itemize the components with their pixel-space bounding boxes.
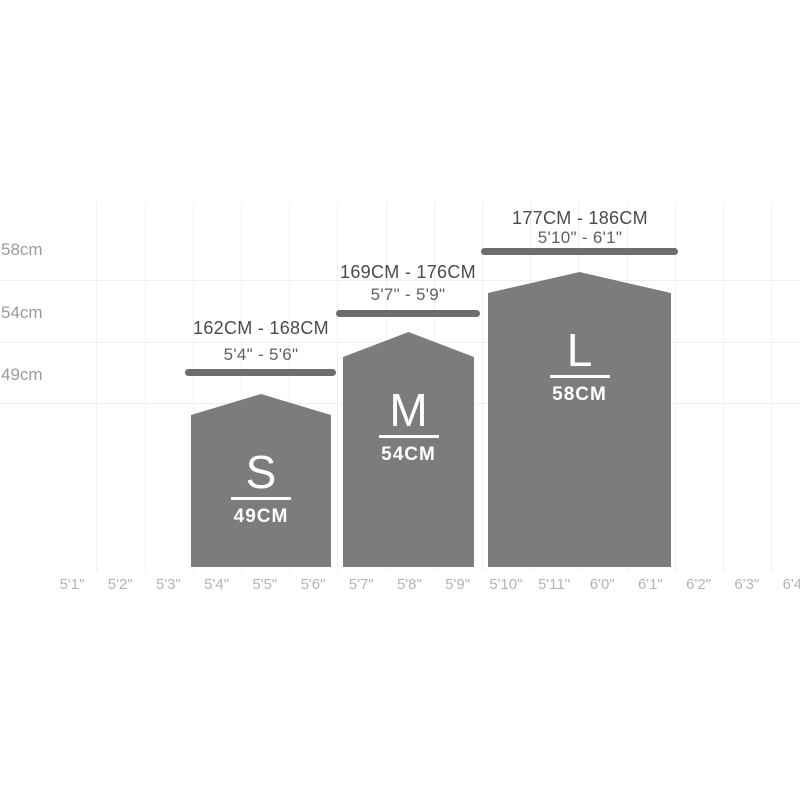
y-axis-label: 54cm: [1, 303, 61, 323]
size-s-letter: S: [191, 449, 331, 495]
vertical-gridline: [337, 202, 338, 572]
size-m-range-bar: [336, 310, 480, 317]
size-s-divider: [231, 497, 291, 500]
size-l-divider: [550, 375, 610, 378]
vertical-gridline: [723, 202, 724, 572]
size-l-bar: L 58CM: [488, 272, 671, 567]
vertical-gridline: [482, 202, 483, 572]
y-axis-label: 58cm: [1, 240, 61, 260]
size-m-height-range-metric: 169CM - 176CM: [258, 261, 558, 283]
size-s-range-bar: [185, 369, 336, 376]
x-axis-label: 6'4": [765, 577, 800, 593]
bike-size-chart: 58cm 54cm 49cm 5'1"5'2"5'3"5'4"5'5"5'6"5…: [0, 0, 800, 800]
size-m-divider: [379, 435, 439, 438]
size-m-letter: M: [343, 387, 474, 433]
size-s-frame-size: 49CM: [191, 506, 331, 528]
vertical-gridline: [675, 202, 676, 572]
size-m-bar: M 54CM: [343, 332, 474, 567]
size-s-bar: S 49CM: [191, 394, 331, 567]
size-s-height-range-metric: 162CM - 168CM: [111, 317, 411, 339]
size-l-height-range-metric: 177CM - 186CM: [430, 207, 730, 229]
size-m-frame-size: 54CM: [343, 444, 474, 466]
vertical-gridline: [96, 202, 97, 572]
y-axis-label: 49cm: [1, 365, 61, 385]
size-l-height-range-imperial: 5'10" - 6'1": [430, 228, 730, 248]
vertical-gridline: [145, 202, 146, 572]
size-l-range-bar: [481, 248, 678, 255]
size-l-frame-size: 58CM: [488, 384, 671, 406]
vertical-gridline: [771, 202, 772, 572]
size-l-letter: L: [488, 327, 671, 373]
